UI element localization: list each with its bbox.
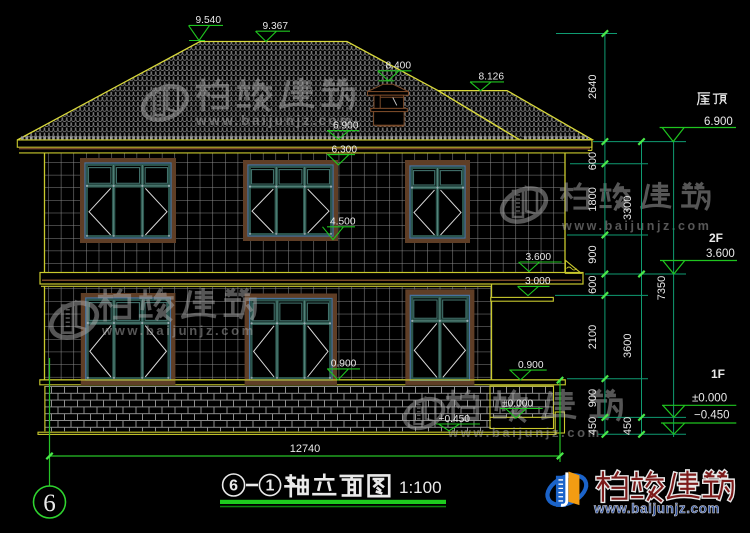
svg-text:2640: 2640 [587, 74, 599, 98]
svg-text:3600: 3600 [622, 333, 634, 357]
svg-text:9.367: 9.367 [263, 21, 289, 32]
svg-text:0.900: 0.900 [518, 360, 544, 371]
svg-text:3.600: 3.600 [706, 248, 735, 260]
svg-text:1800: 1800 [587, 187, 599, 211]
svg-text:3.600: 3.600 [526, 252, 552, 263]
svg-text:www.baijunjz.com: www.baijunjz.com [101, 323, 256, 338]
svg-text:600: 600 [587, 276, 599, 294]
svg-text:450: 450 [587, 417, 599, 435]
svg-text:−0.450: −0.450 [694, 409, 730, 421]
svg-text:7350: 7350 [656, 276, 668, 300]
svg-text:3300: 3300 [622, 196, 634, 220]
svg-text:www.baijunjz.com: www.baijunjz.com [195, 113, 354, 128]
svg-text:4.500: 4.500 [330, 217, 356, 228]
svg-text:±0.000: ±0.000 [692, 392, 727, 404]
svg-text:www.baijunjz.com: www.baijunjz.com [447, 425, 602, 440]
svg-text:www.baijunjz.com: www.baijunjz.com [561, 219, 711, 233]
svg-text:6.900: 6.900 [704, 116, 733, 128]
svg-text:6: 6 [43, 490, 56, 517]
svg-text:8.126: 8.126 [479, 72, 505, 83]
svg-text:6.900: 6.900 [333, 120, 359, 131]
svg-text:1: 1 [266, 478, 275, 495]
svg-text:0.900: 0.900 [331, 359, 357, 370]
svg-text:1:100: 1:100 [399, 478, 442, 497]
svg-text:2100: 2100 [587, 325, 599, 349]
svg-text:6: 6 [229, 478, 238, 495]
svg-text:450: 450 [622, 417, 634, 435]
svg-text:www.baijunjz.com: www.baijunjz.com [593, 501, 720, 516]
svg-text:9.540: 9.540 [196, 15, 222, 26]
svg-text:3.000: 3.000 [525, 276, 551, 287]
svg-text:900: 900 [587, 245, 599, 263]
svg-text:±0.000: ±0.000 [502, 398, 533, 409]
svg-text:1F: 1F [711, 367, 725, 381]
svg-text:2F: 2F [709, 231, 723, 245]
svg-text:900: 900 [587, 389, 599, 407]
svg-text:8.400: 8.400 [386, 61, 412, 72]
svg-text:6.300: 6.300 [332, 144, 358, 155]
svg-text:600: 600 [587, 152, 599, 170]
svg-text:−0.450: −0.450 [439, 414, 471, 425]
svg-text:12740: 12740 [290, 443, 321, 455]
